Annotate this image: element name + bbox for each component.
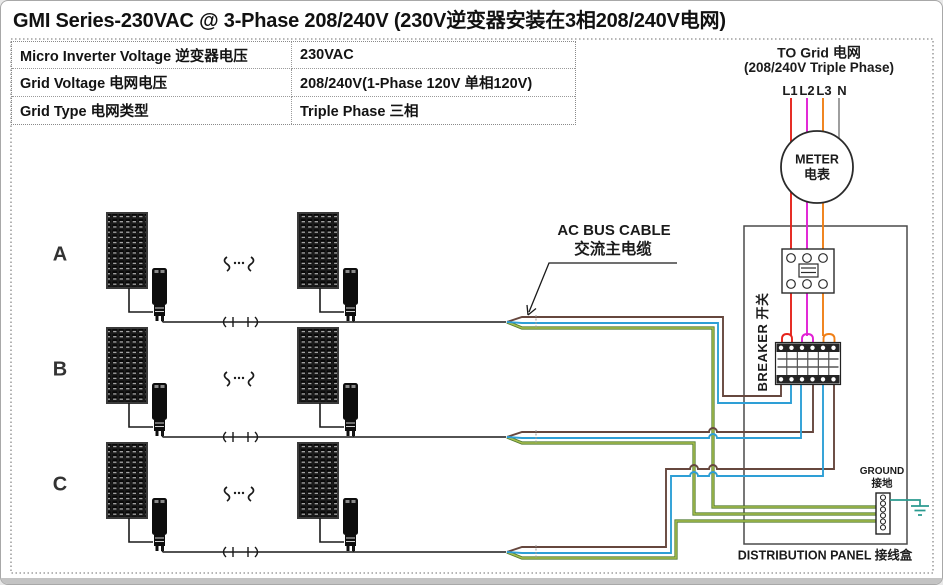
pv-branch-b [107,328,506,442]
ground-label: GROUND [860,467,904,478]
ground-label-cn: 接地 [872,478,893,489]
meter-label: METER [795,153,839,166]
meter-label-cn: 电表 [804,168,830,182]
branch-row-label-a: A [53,245,67,266]
earth-ground-symbol [890,500,929,515]
ac-bus-callout-arrow [527,263,677,315]
pv-branch-c [107,443,506,557]
branch-row-label-b: B [53,360,67,381]
branch-row-label-c: C [53,475,67,496]
branch-breaker-strip [776,343,841,385]
pv-branch-a [107,213,506,327]
distribution-panel-label: DISTRIBUTION PANEL 接线盒 [738,549,913,562]
breaker-label: BREAKER 开关 [756,293,770,392]
ground-bus-bar [876,493,890,534]
phase-label-l2: L2 [799,84,814,98]
to-grid-subheading: (208/240V Triple Phase) [744,61,894,75]
phase-label-l3: L3 [816,84,831,98]
main-breaker [782,249,834,293]
wiring-diagram-screen: GMI Series-230VAC @ 3-Phase 208/240V (23… [0,0,943,585]
ac-bus-cable-label: AC BUS CABLE [557,223,670,239]
phase-label-l1: L1 [782,84,797,98]
window-bottom-edge [1,578,942,584]
to-grid-heading: TO Grid 电网 [777,46,861,61]
phase-label-n: N [837,84,846,98]
ac-bus-cable-label-cn: 交流主电缆 [574,242,652,258]
diagram-dotted-border [11,39,933,573]
